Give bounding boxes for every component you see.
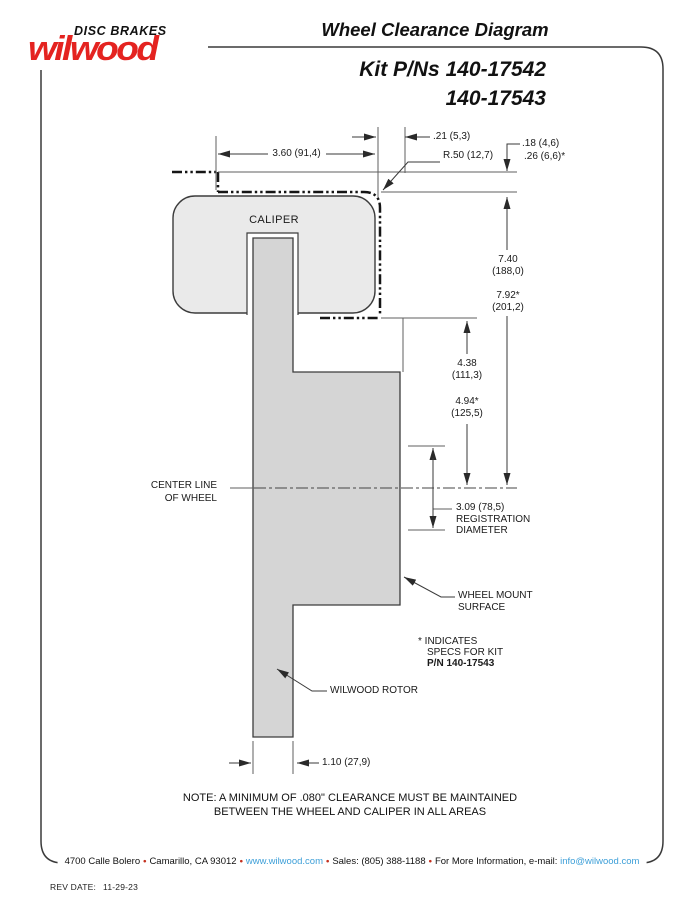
clearance-note-line-1: NOTE: A MINIMUM OF .080" CLEARANCE MUST … — [100, 791, 600, 805]
dim-740-label: 7.40 (188,0) — [477, 253, 539, 279]
centerline-label-1: CENTER LINE — [125, 480, 217, 493]
dim-792-label: 7.92* (201,2) — [477, 289, 539, 315]
clearance-diagram — [0, 0, 700, 906]
rev-date-value: 11-29-23 — [103, 882, 138, 892]
dim-792-in: 7.92* — [477, 290, 539, 302]
dim-494-mm: (125,5) — [436, 408, 498, 420]
footer-bullet: • — [240, 856, 243, 867]
page-title: Wheel Clearance Diagram — [270, 19, 600, 41]
kit-line-1: Kit P/Ns 140-17542 — [318, 55, 546, 84]
dim-438-label: 4.38 (111,3) — [436, 357, 498, 383]
dim-radius-label: R.50 (12,7) — [443, 150, 493, 162]
wms-leader — [404, 577, 455, 597]
wheel-mount-label-1: WHEEL MOUNT — [458, 590, 533, 602]
rotor-label: WILWOOD ROTOR — [330, 685, 418, 697]
asterisk-note: * INDICATES SPECS FOR KIT P/N 140-17543 — [418, 636, 503, 669]
footer-address: 4700 Calle Bolero — [65, 856, 141, 867]
page: DISC BRAKES wilwood Wheel Clearance Diag… — [0, 0, 700, 906]
dim-438-mm: (111,3) — [436, 370, 498, 382]
footer-address-bar: 4700 Calle Bolero•Camarillo, CA 93012•ww… — [58, 856, 647, 867]
caliper-label: CALIPER — [174, 214, 374, 226]
wheel-mount-label: WHEEL MOUNT SURFACE — [458, 590, 533, 613]
logo-brand-text: wilwood — [28, 30, 156, 69]
rev-date: REV DATE:11-29-23 — [50, 882, 145, 892]
clearance-note: NOTE: A MINIMUM OF .080" CLEARANCE MUST … — [100, 791, 600, 819]
dim-494-label: 4.94* (125,5) — [436, 395, 498, 421]
wheel-mount-label-2: SURFACE — [458, 602, 533, 614]
dim-clearance-label-2: .26 (6,6)* — [524, 151, 565, 163]
dim-438-in: 4.38 — [436, 358, 498, 370]
footer-city: Camarillo, CA 93012 — [149, 856, 236, 867]
dim-792-mm: (201,2) — [477, 302, 539, 314]
footer-link-url[interactable]: www.wilwood.com — [246, 856, 323, 867]
rev-date-label: REV DATE: — [50, 882, 96, 892]
footer-bullet: • — [143, 856, 146, 867]
dim-18-leader — [507, 144, 520, 171]
dim-740-in: 7.40 — [477, 254, 539, 266]
registration-label: 3.09 (78,5) REGISTRATION DIAMETER — [456, 502, 530, 537]
footer-info: For More Information, e-mail: — [435, 856, 557, 867]
footer-bullet: • — [326, 856, 329, 867]
centerline-label-2: OF WHEEL — [125, 493, 217, 506]
registration-word-2: DIAMETER — [456, 525, 530, 537]
footer-sales: Sales: (805) 388-1188 — [332, 856, 425, 867]
registration-word-1: REGISTRATION — [456, 514, 530, 526]
asterisk-note-1: * INDICATES — [418, 636, 503, 647]
centerline-label: CENTER LINE OF WHEEL — [125, 480, 217, 505]
footer-link-email[interactable]: info@wilwood.com — [560, 856, 639, 867]
dim-r50-leader — [383, 162, 440, 190]
asterisk-note-2: SPECS FOR KIT — [418, 647, 503, 658]
footer-bullet: • — [429, 856, 432, 867]
wilwood-logo: DISC BRAKES wilwood — [28, 24, 213, 72]
dim-lip-label: .21 (5,3) — [433, 131, 470, 143]
dim-width-label: 3.60 (91,4) — [244, 148, 349, 160]
registration-dim: 3.09 (78,5) — [456, 502, 530, 514]
dim-clearance-label-1: .18 (4,6) — [522, 138, 559, 150]
dim-rotor-label: 1.10 (27,9) — [322, 757, 370, 769]
dim-494-in: 4.94* — [436, 396, 498, 408]
dim-740-mm: (188,0) — [477, 266, 539, 278]
kit-part-numbers: Kit P/Ns 140-17542 140-17543 — [318, 55, 546, 113]
clearance-note-line-2: BETWEEN THE WHEEL AND CALIPER IN ALL ARE… — [100, 805, 600, 819]
kit-line-2: 140-17543 — [318, 84, 546, 113]
asterisk-note-pn: P/N 140-17543 — [418, 658, 503, 669]
